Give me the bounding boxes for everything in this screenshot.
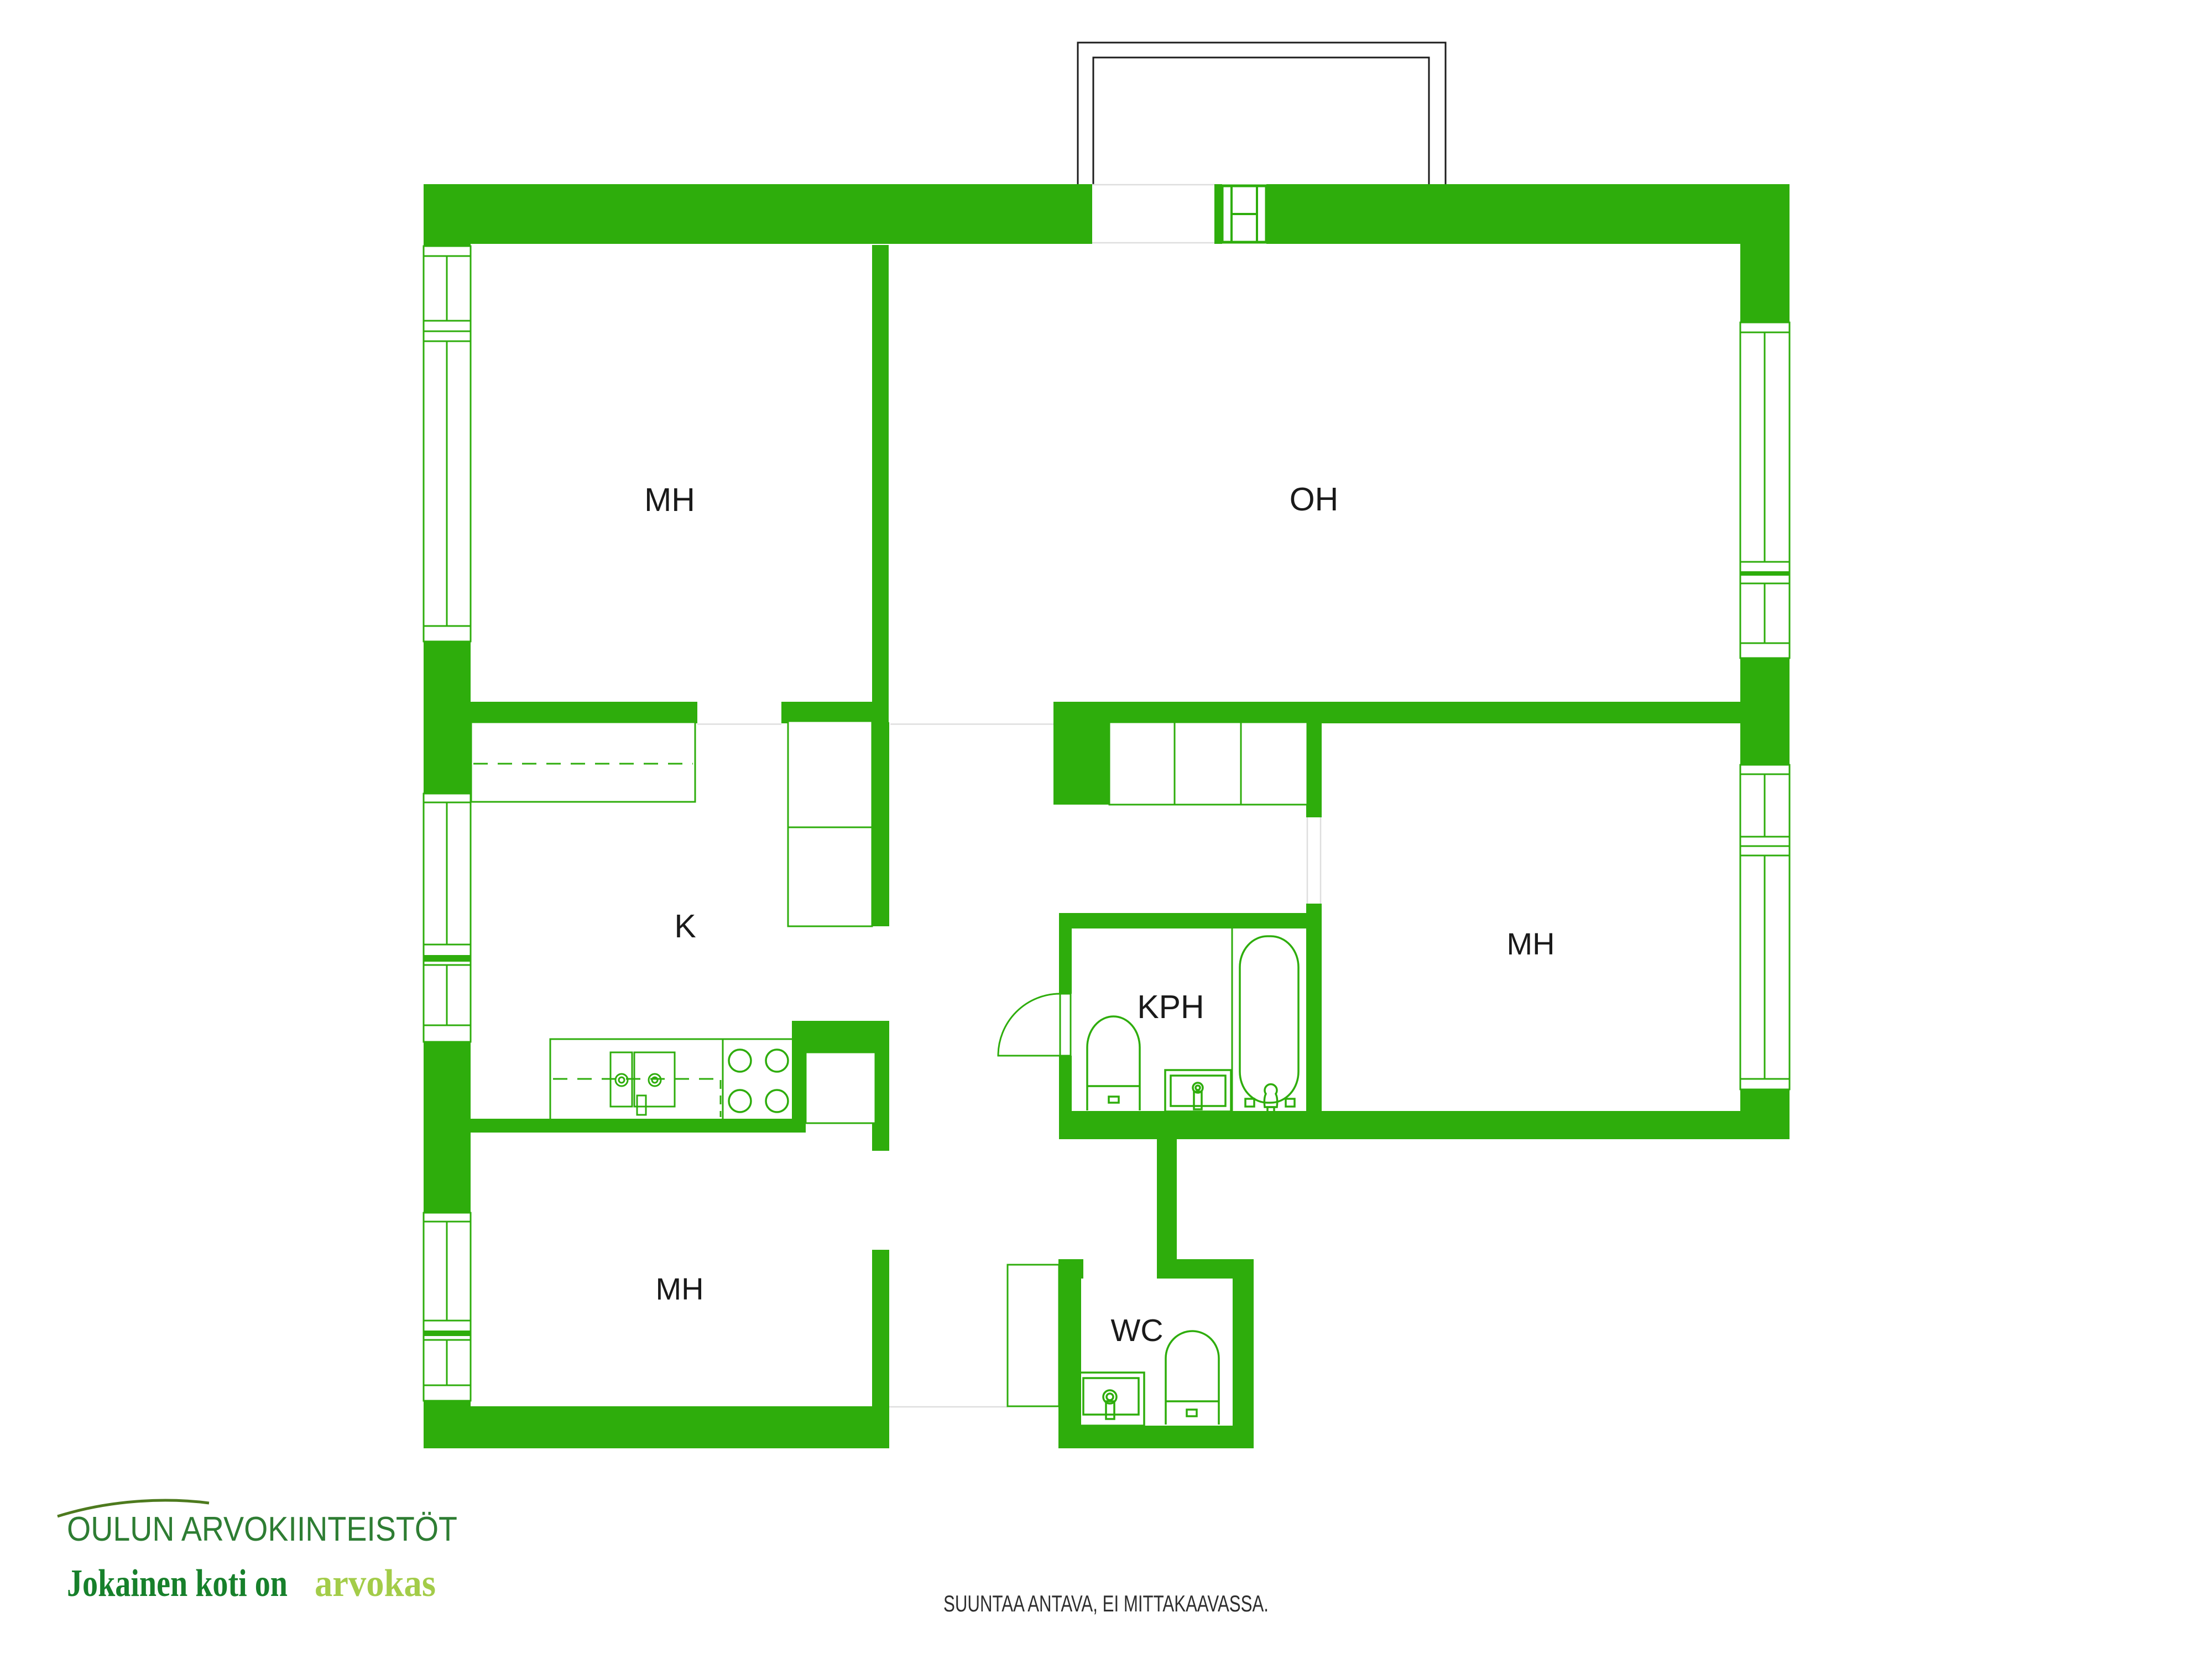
svg-text:MH: MH xyxy=(1506,926,1554,961)
svg-text:MH: MH xyxy=(655,1271,703,1306)
svg-text:OH: OH xyxy=(1290,481,1339,518)
svg-text:SUUNTAA ANTAVA, EI MITTAKAAVAS: SUUNTAA ANTAVA, EI MITTAKAAVASSA. xyxy=(943,1590,1269,1616)
svg-text:K: K xyxy=(674,908,696,945)
svg-text:OULUN ARVOKIINTEISTÖT: OULUN ARVOKIINTEISTÖT xyxy=(67,1510,457,1548)
svg-text:Jokainen koti on: Jokainen koti on xyxy=(67,1562,288,1605)
svg-text:KPH: KPH xyxy=(1137,989,1204,1025)
svg-text:WC: WC xyxy=(1111,1313,1164,1348)
svg-text:MH: MH xyxy=(644,482,695,518)
svg-text:arvokas: arvokas xyxy=(315,1562,436,1605)
